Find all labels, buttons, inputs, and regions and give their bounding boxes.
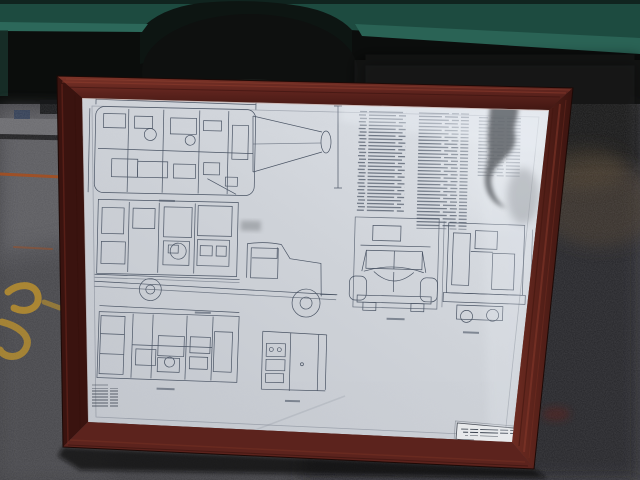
caption-mark — [285, 400, 300, 402]
vehicle-top-shadow — [0, 0, 640, 4]
caption-mark — [195, 312, 211, 314]
glass-smudge — [241, 221, 261, 231]
photograph — [0, 0, 640, 480]
vehicle-edge-sliver — [0, 30, 8, 96]
red-smudge — [542, 407, 570, 421]
reflection-shoulder — [507, 168, 539, 224]
